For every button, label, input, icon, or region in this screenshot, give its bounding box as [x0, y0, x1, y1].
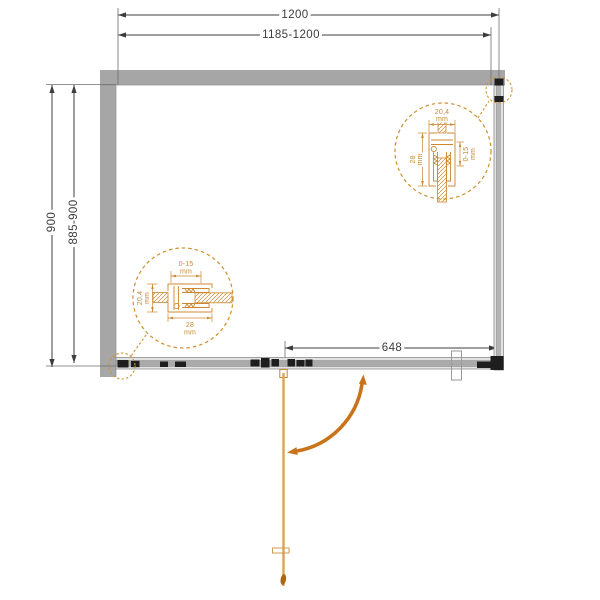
dim-door-width-label: 648 — [382, 342, 402, 354]
dim-left-outer-label: 900 — [46, 212, 58, 232]
detail-drawing-bottom-left: 0-15 mm 20,4 mm 28 mm — [137, 261, 232, 337]
detail-bl-depth-value: 28 — [186, 322, 194, 329]
glass-side-panel-right — [494, 85, 504, 370]
door-swing-arrow — [287, 375, 367, 456]
dim-top-inner-label: 1185-1200 — [262, 29, 320, 41]
door-handle — [273, 548, 290, 553]
dimension-top-outer: 1200 — [118, 9, 499, 21]
detail-bl-width-value: 20,4 — [137, 291, 144, 305]
callout-leader-top-right — [478, 101, 489, 118]
dimension-left-inner: 885-900 — [68, 85, 80, 363]
detail-tr-depth-value: 28 — [410, 155, 417, 163]
wall-top — [100, 70, 505, 85]
detail-tr-adjust-unit: mm — [470, 148, 477, 160]
glass-pane-hatch — [438, 158, 447, 202]
dim-left-inner-label: 885-900 — [68, 199, 80, 244]
glass-pane-hatch — [195, 293, 232, 303]
detail-bl-adjust-value: 0-15 — [179, 261, 194, 268]
dimension-top-inner: 1185-1200 — [118, 29, 491, 41]
detail-bl-depth-unit: mm — [184, 330, 196, 337]
detail-tr-adjust-value: 0-15 — [463, 147, 470, 162]
diagram-drawing: 1200 1185-1200 900 885-900 648 — [0, 0, 600, 600]
door-bottom-seal — [280, 574, 287, 586]
door-open-position — [273, 370, 290, 587]
adjustment-rod-hatch — [153, 293, 168, 303]
detail-bl-adjust-unit: mm — [180, 269, 192, 276]
detail-bl-width-unit: mm — [144, 292, 151, 304]
dimension-left-outer: 900 — [46, 85, 58, 367]
installation-diagram: 1200 1185-1200 900 885-900 648 — [0, 0, 600, 600]
wall-left — [100, 70, 116, 377]
dimension-door-width: 648 — [285, 342, 497, 354]
dim-top-outer-label: 1200 — [281, 9, 308, 21]
callout-leader-bottom-left — [131, 335, 146, 356]
detail-tr-width-unit: mm — [436, 116, 448, 123]
detail-drawing-top-right: 20,4 mm 28 mm 0-15 mm — [410, 109, 477, 202]
detail-tr-width-value: 20,4 — [435, 109, 449, 116]
detail-tr-depth-unit: mm — [417, 153, 424, 165]
